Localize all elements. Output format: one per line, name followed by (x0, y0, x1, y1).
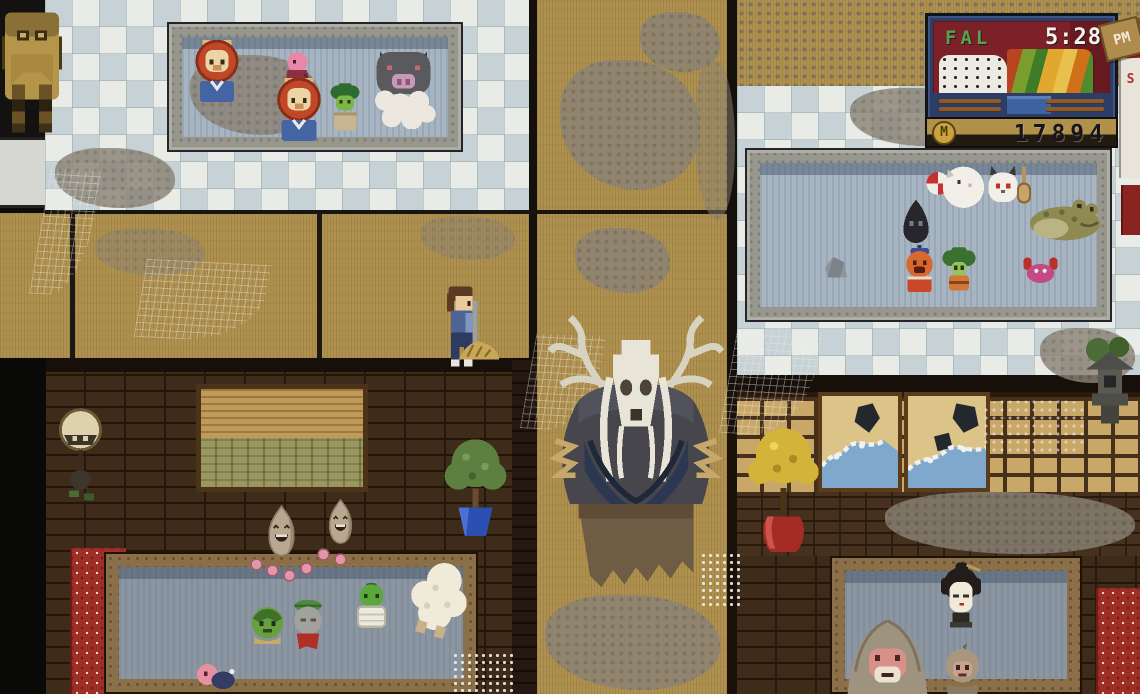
pink-crab-spirit[interactable] (1022, 255, 1059, 284)
money-counter: M 17894 (925, 117, 1118, 148)
kappa-spirit[interactable] (245, 606, 290, 648)
hud-status-panel: FAL 5:28 (925, 13, 1118, 125)
chopsticks-shelf (933, 93, 1110, 117)
geisha-spirit-head[interactable] (936, 562, 986, 646)
chopstick-icon (1046, 107, 1104, 111)
bath-rock (822, 254, 850, 279)
water-dish-icon (1007, 96, 1051, 114)
jizo-statue-spirit[interactable] (287, 598, 329, 651)
shadow-spirit[interactable] (898, 198, 934, 243)
giant-toad-spirit[interactable] (1027, 194, 1103, 241)
pink-orb (266, 564, 279, 577)
hud-food-window: FAL 5:28 (933, 21, 1110, 97)
pink-orb (317, 548, 330, 561)
pink-orb (283, 569, 296, 582)
pink-orb (300, 562, 313, 575)
orange-capped-spirit[interactable] (900, 245, 939, 292)
deer-skull-spirit[interactable] (544, 314, 728, 602)
money-amount: 17894 (1014, 121, 1108, 147)
grey-boar-spirit[interactable] (370, 42, 437, 129)
calendar-letter: S (1121, 72, 1140, 87)
game-viewport: FAL 5:28 M 17894 PM S (0, 0, 1140, 694)
white-cat-with-fan[interactable] (926, 160, 988, 212)
rice-icon (939, 55, 1007, 95)
broccoli-headed-spirit[interactable] (940, 247, 978, 291)
broccoli-frog-spirit[interactable] (327, 83, 363, 133)
backpack (2, 6, 62, 133)
vegetables-icon (1007, 49, 1093, 95)
pink-orb (250, 558, 263, 571)
snow-monkey-small[interactable] (940, 643, 985, 694)
season-label: FAL (945, 27, 991, 49)
potted-tree-blue-pot (444, 438, 507, 539)
laughing-spirit-face-left[interactable] (265, 504, 298, 558)
frog-in-tub[interactable] (350, 583, 393, 629)
red-book-spine-partial (1121, 185, 1140, 235)
white-fluffy-spirit[interactable] (400, 554, 477, 645)
laughing-spirit-face-right[interactable] (324, 498, 357, 545)
yellow-tree-red-pot (748, 427, 819, 555)
coin-icon: M (932, 121, 956, 145)
pink-orb (334, 553, 347, 566)
pink-swimming-spirit[interactable] (194, 660, 236, 692)
chopstick-icon (939, 107, 1001, 111)
clock-time: 5:28 (1045, 25, 1102, 50)
chopstick-icon (939, 99, 1001, 103)
stone-lantern (1080, 336, 1140, 430)
chopstick-icon (1046, 99, 1104, 103)
lion-spirit-bather-left[interactable] (194, 40, 240, 103)
snow-monkey-large[interactable] (841, 616, 934, 694)
hanging-gong-ornament (57, 408, 104, 505)
lion-spirit-bather-center[interactable] (275, 78, 323, 142)
swept-dust-pile (456, 336, 502, 363)
